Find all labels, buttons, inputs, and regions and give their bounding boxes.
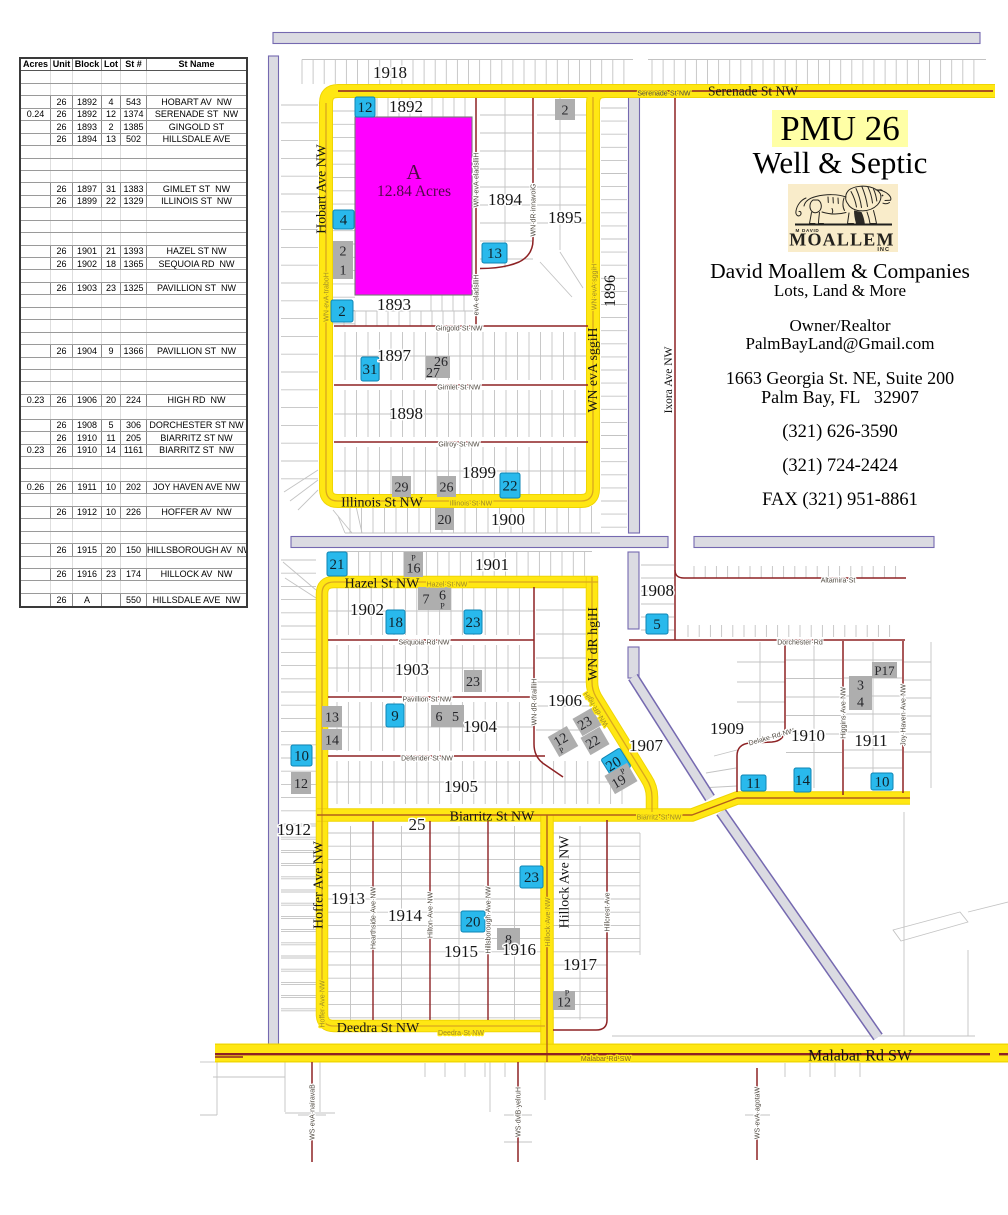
svg-text:Joy·Haven·Ave·NW: Joy·Haven·Ave·NW (900, 684, 907, 746)
svg-text:Sequoia·Rd·NW: Sequoia·Rd·NW (399, 640, 450, 647)
svg-text:1913: 1913 (331, 889, 365, 908)
svg-text:12.84 Acres: 12.84 Acres (377, 183, 451, 200)
svg-text:1910: 1910 (791, 726, 825, 745)
svg-text:WN evA sggiH: WN evA sggiH (585, 327, 600, 412)
svg-text:Hilton·Ave·NW: Hilton·Ave·NW (427, 892, 434, 939)
svg-text:12: 12 (557, 996, 571, 1011)
svg-text:Hearthside·Ave·NW: Hearthside·Ave·NW (370, 887, 377, 950)
svg-text:1893: 1893 (377, 295, 411, 314)
svg-text:7: 7 (423, 593, 430, 608)
svg-text:29: 29 (395, 481, 409, 496)
svg-text:Illinois St NW: Illinois St NW (341, 496, 423, 511)
svg-text:2: 2 (340, 245, 347, 260)
svg-text:2: 2 (338, 304, 346, 320)
svg-text:WN·dR·drailliH: WN·dR·drailliH (531, 679, 538, 726)
svg-text:P: P (440, 602, 445, 611)
svg-text:INC: INC (877, 247, 890, 252)
svg-text:WN·evA·eladslliH: WN·evA·eladslliH (473, 153, 480, 208)
svg-text:1899: 1899 (462, 463, 496, 482)
svg-text:3: 3 (857, 679, 864, 694)
svg-text:1906: 1906 (548, 691, 582, 710)
svg-text:Hillsborough·Ave·NW: Hillsborough·Ave·NW (485, 886, 492, 954)
svg-text:evA·eladslliH: evA·eladslliH (473, 275, 480, 316)
svg-text:14: 14 (795, 773, 811, 789)
svg-text:WS·evA·agotaW: WS·evA·agotaW (754, 1087, 761, 1140)
svg-text:WN·evA·sggiH: WN·evA·sggiH (591, 264, 598, 310)
svg-text:Hillcrest·Ave: Hillcrest·Ave (604, 892, 611, 931)
svg-text:12: 12 (294, 777, 308, 792)
svg-text:26: 26 (440, 481, 454, 496)
svg-text:1915: 1915 (444, 942, 478, 961)
svg-text:1904: 1904 (463, 717, 498, 736)
svg-text:Serenade·St·NW: Serenade·St·NW (637, 91, 691, 98)
svg-text:Hobart Ave NW: Hobart Ave NW (314, 144, 329, 233)
svg-text:1912: 1912 (277, 820, 311, 839)
svg-text:Hazel St NW: Hazel St NW (345, 577, 420, 592)
svg-text:1909: 1909 (710, 719, 744, 738)
svg-text:23: 23 (466, 675, 480, 690)
svg-text:1896: 1896 (602, 275, 619, 307)
svg-text:1: 1 (340, 264, 347, 279)
svg-text:1916: 1916 (502, 940, 536, 959)
svg-text:1905: 1905 (444, 777, 478, 796)
svg-text:1895: 1895 (548, 208, 582, 227)
svg-text:10: 10 (294, 749, 309, 765)
svg-text:Hillock·Ave·NW: Hillock·Ave·NW (545, 897, 552, 946)
svg-text:1907: 1907 (629, 736, 664, 755)
svg-text:1918: 1918 (373, 63, 407, 82)
svg-text:1901: 1901 (475, 555, 509, 574)
svg-text:2: 2 (562, 104, 569, 119)
svg-text:Pavillion·St·NW: Pavillion·St·NW (402, 697, 451, 704)
svg-text:Malabar Rd SW: Malabar Rd SW (808, 1048, 913, 1065)
svg-text:A: A (406, 160, 422, 184)
svg-text:27: 27 (426, 366, 440, 381)
svg-text:Malabar¹Rd¹SW: Malabar¹Rd¹SW (581, 1056, 632, 1063)
svg-text:WN dR hgiH: WN dR hgiH (585, 607, 600, 681)
svg-text:1903: 1903 (395, 660, 429, 679)
svg-text:Dorchester·Rd: Dorchester·Rd (777, 640, 823, 647)
svg-text:12: 12 (358, 100, 373, 116)
svg-text:Gilroy·St·NW: Gilroy·St·NW (438, 442, 480, 449)
svg-text:10: 10 (875, 775, 890, 791)
svg-text:1900: 1900 (491, 510, 525, 529)
svg-text:18: 18 (388, 615, 403, 631)
svg-text:16: 16 (407, 562, 421, 577)
svg-text:4: 4 (857, 696, 864, 711)
svg-text:Hoffer·Ave·NW: Hoffer·Ave·NW (319, 980, 326, 1028)
svg-text:11: 11 (746, 776, 760, 792)
svg-text:1908: 1908 (640, 581, 674, 600)
svg-text:Defender·St·NW: Defender·St·NW (401, 756, 453, 763)
svg-text:31: 31 (363, 362, 378, 378)
svg-text:1897: 1897 (377, 346, 412, 365)
svg-text:Hillock Ave NW: Hillock Ave NW (557, 836, 572, 928)
svg-text:5: 5 (653, 617, 661, 633)
svg-text:1894: 1894 (488, 190, 523, 209)
svg-text:Hazel·St·NW: Hazel·St·NW (427, 582, 468, 589)
svg-text:Altamira·St: Altamira·St (821, 578, 856, 585)
svg-text:20: 20 (466, 915, 481, 931)
svg-text:14: 14 (325, 734, 339, 749)
svg-text:Illinois·St·NW: Illinois·St·NW (450, 501, 493, 508)
svg-text:WS·evA·nairavaB: WS·evA·nairavaB (309, 1084, 316, 1140)
svg-text:Deedra St NW: Deedra St NW (337, 1021, 420, 1036)
svg-text:Ixora Ave NW: Ixora Ave NW (663, 346, 675, 413)
svg-text:WN·dR·innavoiG: WN·dR·innavoiG (530, 184, 537, 237)
svg-text:Biarritz·St·NW: Biarritz·St·NW (637, 815, 682, 822)
svg-text:1892: 1892 (389, 97, 423, 116)
svg-text:6: 6 (436, 710, 443, 725)
svg-text:Gimlet·St·NW: Gimlet·St·NW (437, 385, 481, 392)
svg-text:25: 25 (409, 815, 426, 834)
svg-text:20: 20 (438, 513, 452, 528)
svg-text:1914: 1914 (388, 906, 423, 925)
svg-text:23: 23 (524, 870, 539, 886)
svg-text:Deedra·St·NW: Deedra·St·NW (438, 1030, 484, 1037)
svg-text:Delake·Rd·NW: Delake·Rd·NW (748, 728, 796, 748)
svg-text:9: 9 (391, 709, 399, 725)
svg-text:21: 21 (330, 557, 345, 573)
svg-text:1911: 1911 (854, 731, 887, 750)
svg-text:13: 13 (325, 711, 339, 726)
svg-text:Higgins·Ave·NW: Higgins·Ave·NW (840, 687, 847, 739)
svg-text:Gingold·St·NW: Gingold·St·NW (435, 326, 482, 333)
svg-text:22: 22 (503, 479, 518, 495)
svg-text:P17: P17 (874, 663, 895, 678)
svg-text:13: 13 (487, 246, 502, 262)
svg-text:Serenade St NW: Serenade St NW (708, 84, 798, 99)
svg-text:5: 5 (452, 710, 459, 725)
svg-text:1898: 1898 (389, 404, 423, 423)
svg-text:1917: 1917 (563, 955, 598, 974)
svg-text:4: 4 (340, 213, 348, 229)
svg-text:1902: 1902 (350, 600, 384, 619)
svg-text:Biarritz St NW: Biarritz St NW (450, 810, 536, 825)
svg-text:23: 23 (466, 615, 481, 631)
svg-text:WN·evA·traboH: WN·evA·traboH (323, 272, 330, 321)
svg-text:WS·dvlB·yelruH: WS·dvlB·yelruH (515, 1087, 522, 1137)
svg-text:Hoffer Ave NW: Hoffer Ave NW (311, 841, 326, 929)
